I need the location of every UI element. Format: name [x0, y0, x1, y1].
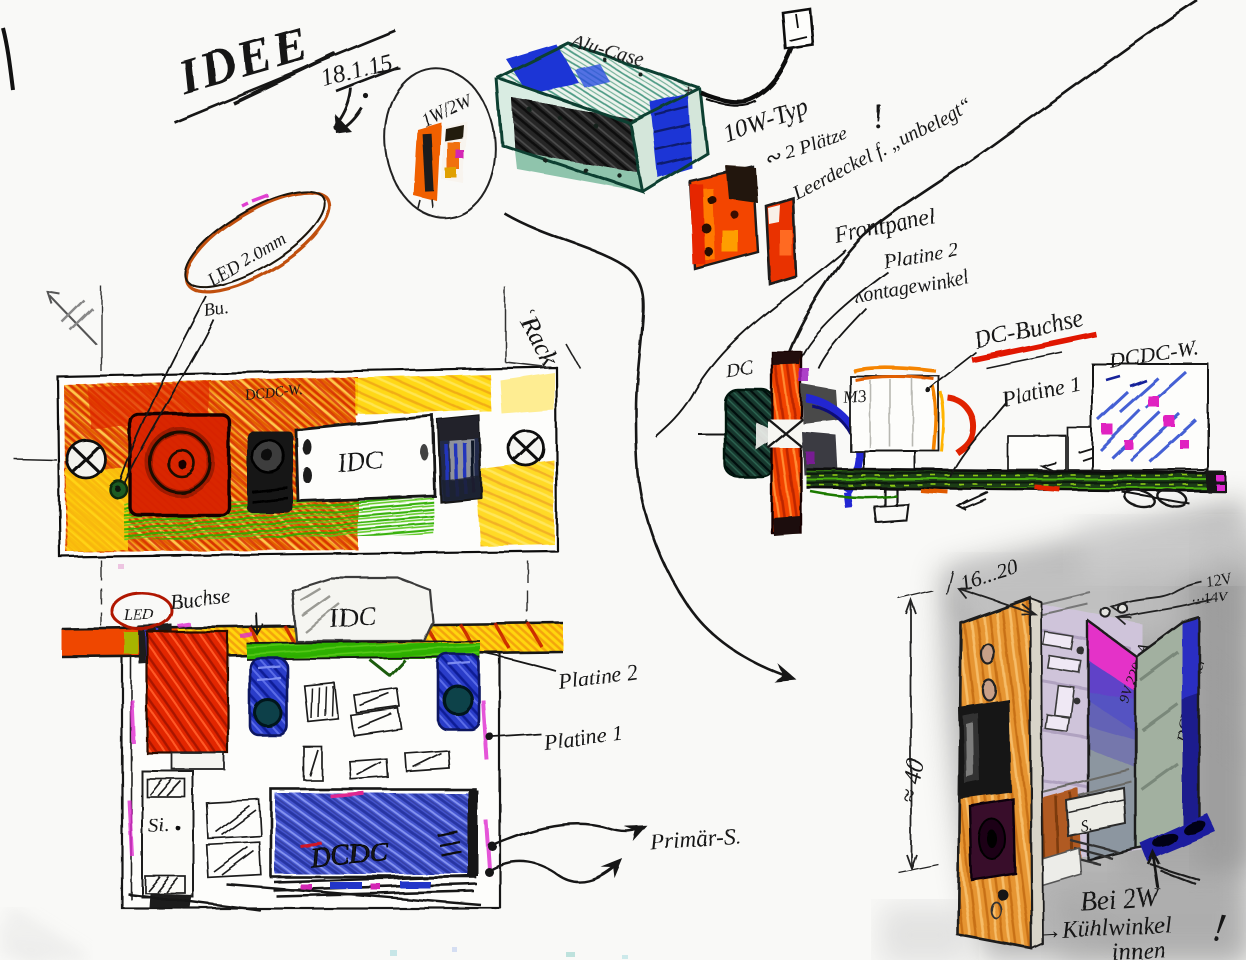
svg-text:Bu.: Bu.	[203, 297, 230, 321]
svg-text:LED: LED	[123, 607, 155, 624]
svg-text:S.: S.	[1079, 817, 1093, 836]
svg-text:M3: M3	[841, 386, 867, 407]
svg-text:Si.: Si.	[147, 813, 170, 837]
svg-text:innen: innen	[1111, 937, 1166, 960]
svg-text:DC: DC	[724, 357, 756, 383]
svg-text:Bei 2W: Bei 2W	[1079, 882, 1162, 916]
svg-text:IDC: IDC	[336, 445, 385, 478]
svg-text:IDC: IDC	[328, 600, 377, 634]
